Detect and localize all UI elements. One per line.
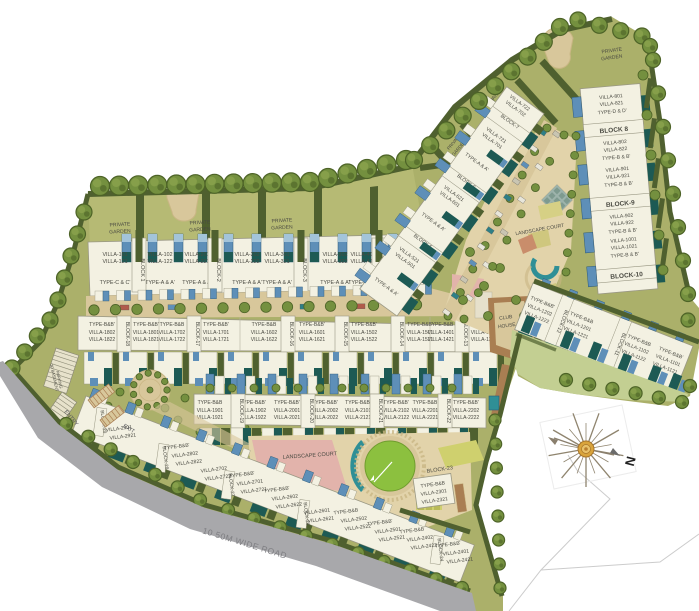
svg-text:VILLA-1421: VILLA-1421: [428, 337, 455, 343]
svg-text:VILLA-1721: VILLA-1721: [203, 337, 230, 343]
svg-text:BLOCK-3: BLOCK-3: [301, 258, 307, 282]
svg-text:TYPE-B&B: TYPE-B&B: [160, 322, 185, 328]
svg-text:TYPE-B&B: TYPE-B&B: [252, 322, 277, 328]
svg-text:VILLA-1722: VILLA-1722: [159, 337, 186, 343]
svg-text:TYPE-B&B': TYPE-B&B': [312, 400, 338, 406]
svg-text:TYPE-B&B': TYPE-B&B': [345, 400, 371, 406]
svg-text:VILLA-221: VILLA-221: [184, 259, 209, 265]
svg-text:BLOCK-16: BLOCK-16: [288, 322, 294, 346]
svg-text:VILLA-1822: VILLA-1822: [89, 337, 116, 343]
svg-text:VILLA-1802: VILLA-1802: [89, 330, 116, 336]
svg-text:VILLA-2121: VILLA-2121: [345, 415, 372, 421]
svg-text:PRIVATE: PRIVATE: [271, 217, 293, 224]
svg-text:VILLA-122: VILLA-122: [147, 259, 172, 265]
svg-text:VILLA-1401: VILLA-1401: [428, 330, 455, 336]
svg-text:TYPE-B&B': TYPE-B&B': [453, 400, 479, 406]
svg-text:VILLA-121: VILLA-121: [102, 259, 127, 265]
svg-text:TYPE-A & A': TYPE-A & A': [232, 280, 262, 286]
svg-text:VILLA-2001: VILLA-2001: [274, 408, 301, 414]
svg-text:TYPE-A & A': TYPE-A & A': [320, 280, 350, 286]
svg-text:TYPE-A & A': TYPE-A & A': [182, 280, 212, 286]
svg-text:VILLA-322: VILLA-322: [322, 259, 347, 265]
svg-text:VILLA-1522: VILLA-1522: [351, 337, 378, 343]
svg-text:VILLA-1701: VILLA-1701: [203, 330, 230, 336]
svg-text:TYPE-A & A': TYPE-A & A': [145, 280, 175, 286]
svg-text:BLOCK-2: BLOCK-2: [215, 258, 221, 282]
svg-text:VILLA-201: VILLA-201: [184, 252, 209, 258]
svg-text:BLOCK-20: BLOCK-20: [308, 399, 314, 423]
svg-text:BLOCK 1: BLOCK 1: [139, 258, 145, 281]
svg-text:VILLA-2021: VILLA-2021: [274, 415, 301, 421]
svg-text:TYPE-B&B': TYPE-B&B': [89, 322, 115, 328]
svg-text:VILLA-2201: VILLA-2201: [412, 408, 439, 414]
svg-text:VILLA-302: VILLA-302: [322, 252, 347, 258]
svg-text:VILLA-2002: VILLA-2002: [312, 408, 339, 414]
svg-text:VILLA-1502: VILLA-1502: [351, 330, 378, 336]
svg-text:VILLA-2022: VILLA-2022: [312, 415, 339, 421]
svg-text:GARDEN: GARDEN: [189, 226, 211, 233]
svg-text:TYPE-B&B: TYPE-B&B: [413, 400, 438, 406]
svg-text:VILLA-1702: VILLA-1702: [159, 330, 186, 336]
svg-text:BLOCK-21: BLOCK-21: [377, 399, 383, 423]
svg-text:VILLA-2202: VILLA-2202: [453, 408, 480, 414]
svg-text:VILLA-1621: VILLA-1621: [299, 337, 326, 343]
svg-text:TYPE-C & C': TYPE-C & C': [100, 280, 131, 286]
svg-text:VILLA-2101: VILLA-2101: [345, 408, 372, 414]
svg-text:VILLA-1901: VILLA-1901: [197, 408, 224, 414]
svg-text:VILLA-2102: VILLA-2102: [383, 408, 410, 414]
svg-text:TYPE-B&B': TYPE-B&B': [133, 322, 159, 328]
svg-text:VILLA-101: VILLA-101: [102, 252, 127, 258]
svg-text:VILLA-1622: VILLA-1622: [251, 337, 278, 343]
svg-text:VILLA-2222: VILLA-2222: [453, 415, 480, 421]
svg-text:GARDEN: GARDEN: [271, 224, 293, 231]
svg-text:BLOCK-22: BLOCK-22: [445, 399, 451, 423]
svg-text:TYPE-B&B: TYPE-B&B: [429, 322, 454, 328]
svg-text:BLOCK-13: BLOCK-13: [462, 322, 468, 346]
svg-text:VILLA-222: VILLA-222: [234, 259, 259, 265]
svg-text:VILLA-1601: VILLA-1601: [299, 330, 326, 336]
svg-text:VILLA-1801: VILLA-1801: [133, 330, 160, 336]
svg-text:BLOCK-19: BLOCK-19: [238, 399, 244, 423]
svg-text:TYPE-B&B': TYPE-B&B': [351, 322, 377, 328]
svg-text:VILLA-2221: VILLA-2221: [412, 415, 439, 421]
svg-text:TYPE-B&B: TYPE-B&B: [198, 400, 223, 406]
svg-text:TYPE-B&B': TYPE-B&B': [203, 322, 229, 328]
svg-text:BLOCK-18: BLOCK-18: [124, 322, 130, 346]
svg-text:BLOCK-17: BLOCK-17: [194, 322, 200, 346]
svg-text:TYPE-B&B': TYPE-B&B': [299, 322, 325, 328]
svg-text:BLOCK-15: BLOCK-15: [342, 322, 348, 346]
svg-text:VILLA-102: VILLA-102: [147, 252, 172, 258]
svg-text:VILLA-321: VILLA-321: [264, 259, 289, 265]
svg-text:VILLA-2122: VILLA-2122: [383, 415, 410, 421]
svg-text:VILLA-202: VILLA-202: [234, 252, 259, 258]
svg-text:TYPE-A & A': TYPE-A & A': [262, 280, 292, 286]
svg-text:VILLA-301: VILLA-301: [264, 252, 289, 258]
svg-text:TYPE-B&B': TYPE-B&B': [274, 400, 300, 406]
svg-text:PRIVATE: PRIVATE: [109, 221, 131, 228]
svg-text:VILLA-1602: VILLA-1602: [251, 330, 278, 336]
svg-text:BLOCK-14: BLOCK-14: [398, 322, 404, 346]
svg-text:VILLA-1821: VILLA-1821: [133, 337, 160, 343]
svg-text:PRIVATE: PRIVATE: [189, 219, 211, 226]
svg-text:TYPE-B&B': TYPE-B&B': [383, 400, 409, 406]
